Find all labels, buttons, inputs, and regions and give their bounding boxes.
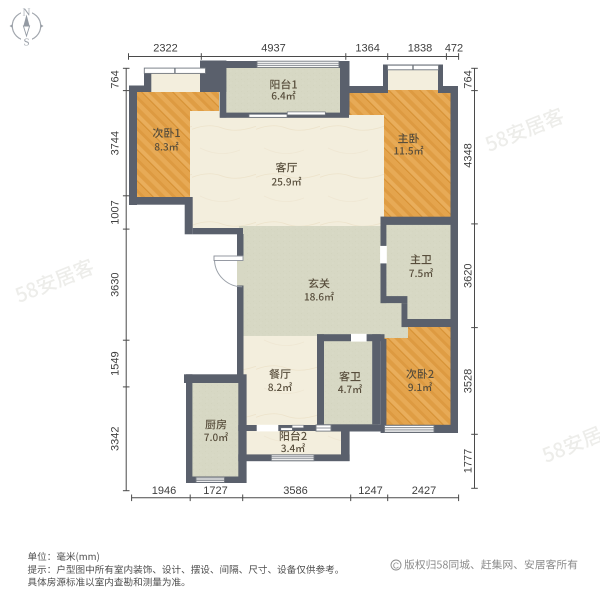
svg-text:764: 764 xyxy=(463,70,475,88)
svg-text:3620: 3620 xyxy=(463,264,475,288)
svg-text:1364: 1364 xyxy=(355,43,379,55)
svg-text:1838: 1838 xyxy=(408,43,432,55)
svg-text:3630: 3630 xyxy=(110,272,122,296)
svg-text:C: C xyxy=(393,560,399,570)
svg-text:4937: 4937 xyxy=(261,43,285,55)
svg-text:1777: 1777 xyxy=(463,449,475,473)
svg-text:1727: 1727 xyxy=(203,485,227,497)
svg-text:764: 764 xyxy=(110,70,122,88)
svg-text:1007: 1007 xyxy=(110,200,122,224)
svg-text:1247: 1247 xyxy=(358,485,382,497)
svg-text:3744: 3744 xyxy=(110,131,122,155)
svg-text:3586: 3586 xyxy=(283,485,307,497)
svg-text:472: 472 xyxy=(445,43,463,55)
svg-text:4348: 4348 xyxy=(463,143,475,167)
svg-text:2322: 2322 xyxy=(153,43,177,55)
svg-text:2427: 2427 xyxy=(412,485,436,497)
svg-text:3528: 3528 xyxy=(463,369,475,393)
svg-text:1549: 1549 xyxy=(110,351,122,375)
svg-text:1946: 1946 xyxy=(152,485,176,497)
svg-text:S: S xyxy=(23,37,29,49)
svg-text:3342: 3342 xyxy=(110,427,122,451)
